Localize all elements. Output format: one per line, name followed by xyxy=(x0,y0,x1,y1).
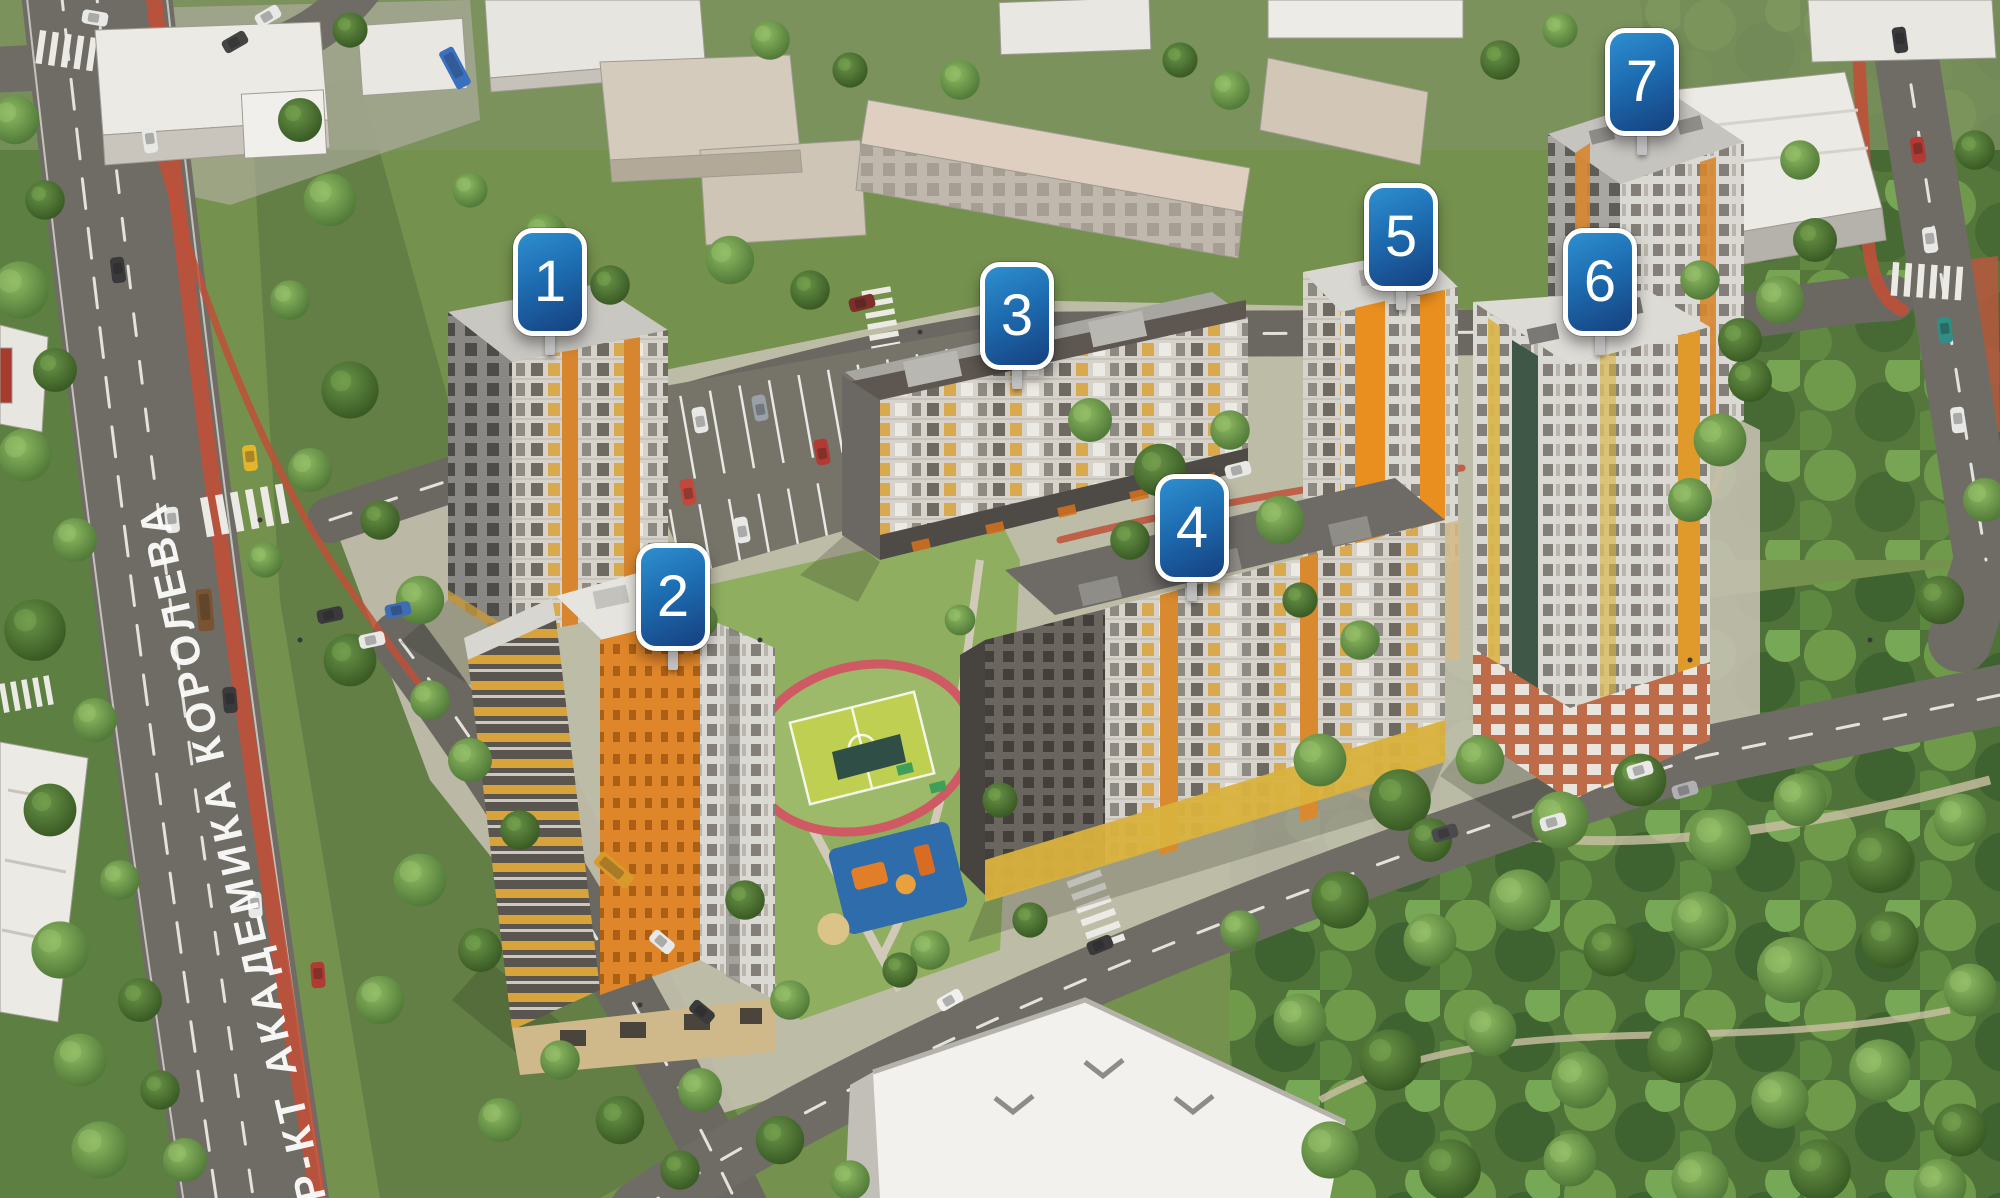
marker-number: 3 xyxy=(1001,287,1033,345)
marker-number: 2 xyxy=(657,568,689,626)
building-marker-4[interactable]: 4 xyxy=(1155,474,1229,601)
building-marker-6[interactable]: 6 xyxy=(1563,228,1637,355)
building-6 xyxy=(1473,290,1710,800)
taxi xyxy=(242,444,259,471)
site-plan-scene xyxy=(0,0,2000,1198)
building-marker-2[interactable]: 2 xyxy=(636,543,710,670)
marker-number: 6 xyxy=(1584,253,1616,311)
building-marker-3[interactable]: 3 xyxy=(980,262,1054,389)
marker-sign: 7 xyxy=(1605,28,1679,136)
marker-sign: 2 xyxy=(636,543,710,651)
building-marker-1[interactable]: 1 xyxy=(513,228,587,355)
marker-number: 7 xyxy=(1626,53,1658,111)
marker-number: 5 xyxy=(1385,208,1417,266)
white-slab-a xyxy=(95,22,330,165)
white-box-f xyxy=(999,0,1151,55)
marker-sign: 6 xyxy=(1563,228,1637,336)
white-slab-g xyxy=(1268,0,1463,38)
marker-sign: 1 xyxy=(513,228,587,336)
marker-sign: 4 xyxy=(1155,474,1229,582)
marker-sign: 3 xyxy=(980,262,1054,370)
building-marker-5[interactable]: 5 xyxy=(1364,183,1438,310)
masterplan-render: ПР-КТ АКАДЕМИКА КОРОЛЕВА 1 2 3 4 5 6 7 xyxy=(0,0,2000,1198)
marker-number: 1 xyxy=(534,253,566,311)
marker-number: 4 xyxy=(1176,499,1208,557)
building-marker-7[interactable]: 7 xyxy=(1605,28,1679,155)
marker-sign: 5 xyxy=(1364,183,1438,291)
